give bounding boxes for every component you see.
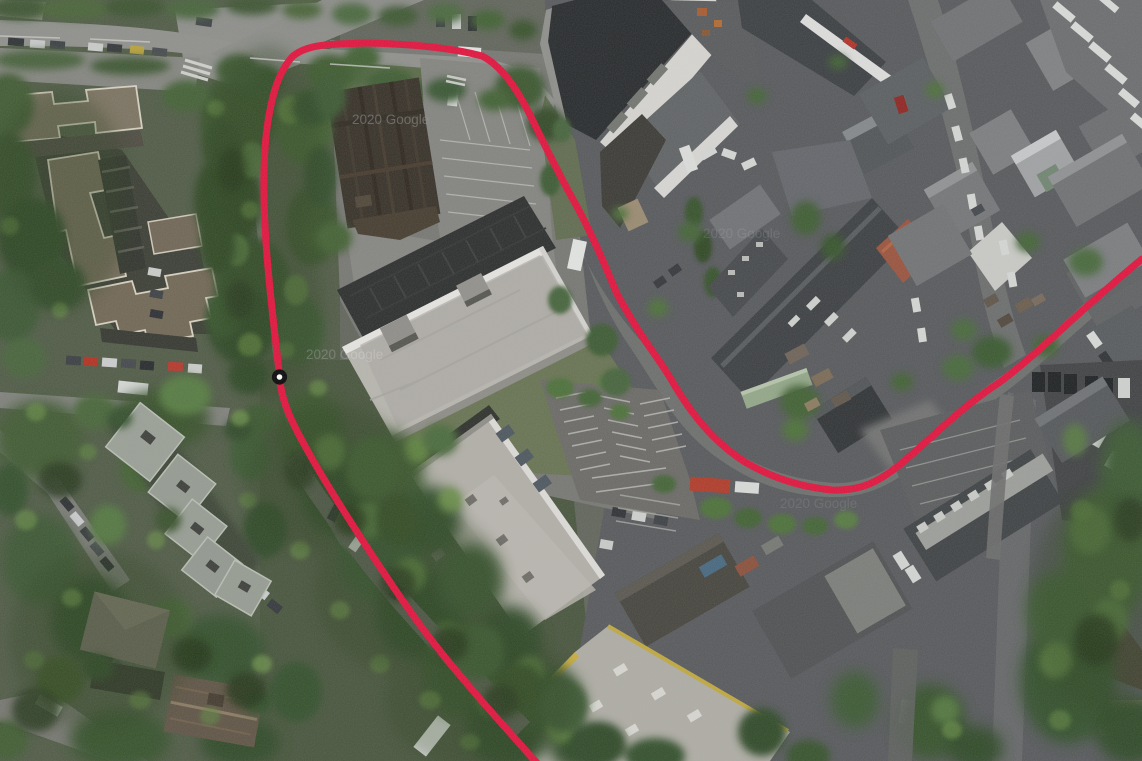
svg-text:2020 Google: 2020 Google: [780, 496, 857, 511]
svg-text:2020 Google: 2020 Google: [352, 112, 429, 127]
svg-text:2020 Google: 2020 Google: [306, 347, 383, 362]
svg-text:2020 Google: 2020 Google: [703, 226, 780, 241]
